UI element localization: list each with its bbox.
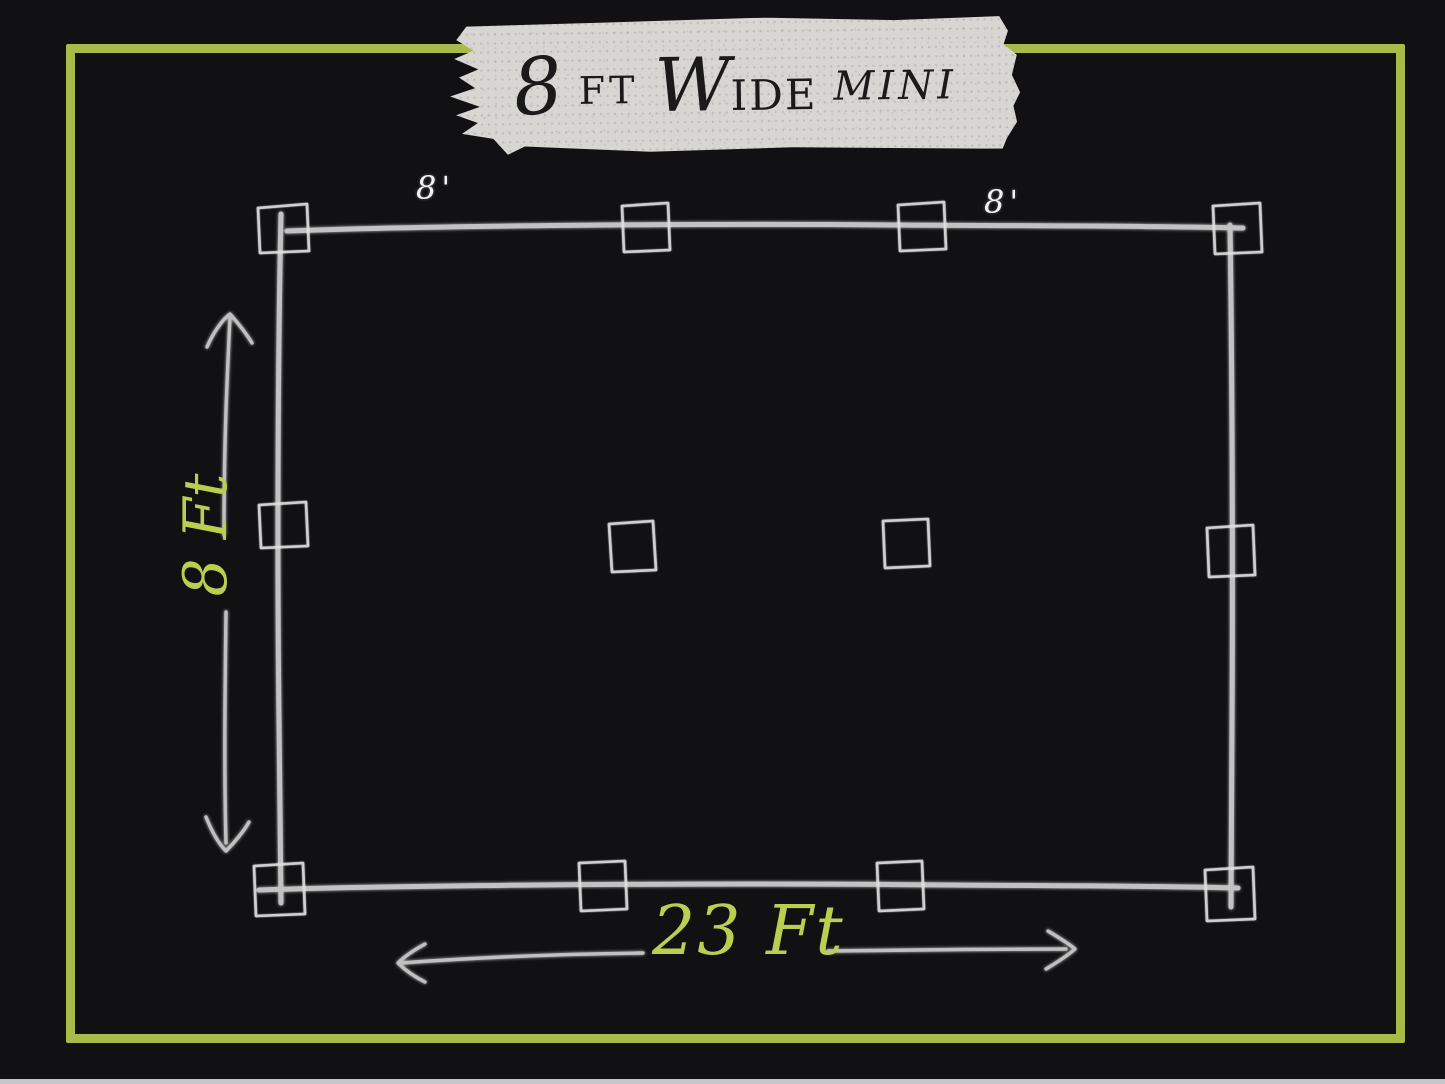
post-marker-mid-2: [609, 521, 656, 572]
tape-wide-w: W: [654, 48, 731, 123]
width-dimension-label: 23 Ft: [652, 898, 845, 966]
tape-mini: MINI: [833, 56, 957, 110]
tape-wide: W IDE: [654, 47, 818, 123]
post-marker-top-2: [622, 203, 670, 252]
title-tape: 8 FT W IDE MINI: [449, 15, 1021, 156]
outline-bottom-edge: [259, 884, 1238, 890]
canvas: 8' 8' 8 Ft 23 Ft 8 FT W IDE MINI: [0, 0, 1445, 1084]
frame-outline: [259, 214, 1243, 907]
post-markers: [254, 202, 1262, 921]
tape-number: 8: [509, 46, 566, 129]
width-arrow-line-right: [828, 949, 1066, 951]
post-marker-mid-3: [883, 519, 930, 568]
width-arrow-line-left: [401, 953, 643, 963]
tape-wide-ide: IDE: [730, 70, 818, 120]
outline-top-edge: [287, 224, 1243, 231]
tape-ft: FT: [578, 60, 638, 113]
outline-right-edge: [1230, 225, 1232, 907]
height-dimension-label: 8 Ft: [176, 435, 236, 635]
outline-left-edge: [278, 214, 281, 903]
height-arrow-head-bottom-icon: [206, 817, 249, 851]
span-label-left: 8': [416, 172, 455, 204]
bottom-edge-strip: [0, 1079, 1445, 1084]
height-arrow-line-lower: [225, 612, 226, 843]
span-label-right: 8': [984, 186, 1023, 218]
post-marker-mid-left: [259, 502, 308, 548]
